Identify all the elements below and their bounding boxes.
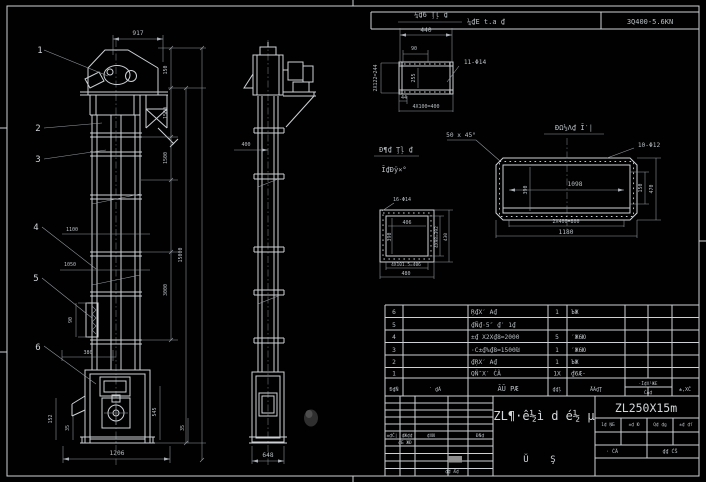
long-detail-dim-1098: 1098 bbox=[568, 181, 583, 188]
front-elevation-view: 1 2 3 4 5 6 917 150 1500 1500 3000 15000… bbox=[33, 30, 206, 465]
dim-152: 152 bbox=[48, 414, 54, 423]
bom-table: Đ₫Ñ ′ ₫Ã ÃŨ PÆ ₫₫ļ ĀÃ₫Ţ ·Ī₫X¹ЖE ĆÃ₫ ±‚XČ… bbox=[385, 305, 699, 476]
title-block: ZL¶·ê½ì d é½ µ ZL250X15m ±₫Č| ₫Ж₫₫ ₫XЮ Đ… bbox=[385, 396, 699, 476]
balloon-1: 1 bbox=[37, 46, 42, 56]
bom-2-qty: 5 bbox=[555, 334, 559, 341]
balloon-6: 6 bbox=[35, 343, 40, 353]
header-model-code: 3Q400-5.6KN bbox=[627, 18, 673, 26]
square-detail-dim-480: 480 bbox=[401, 271, 410, 277]
bom-header-no: Đ₫Ñ bbox=[389, 386, 398, 393]
square-detail-dim-430: 430 bbox=[443, 233, 449, 241]
smudge-inner bbox=[306, 410, 313, 418]
front-dim-arrows bbox=[63, 37, 170, 460]
bom-5-no: 1 bbox=[392, 371, 396, 378]
dim-917: 917 bbox=[132, 30, 143, 37]
bom-header-note: ±‚XČ bbox=[679, 386, 691, 393]
bom-row: 3 ·C±₫%₫8=1500₪ 1 ′Ж6Ю bbox=[392, 347, 586, 354]
long-detail-dim-800: 2X400=800 bbox=[552, 219, 579, 225]
bom-5-qty: 1X bbox=[553, 371, 561, 378]
long-detail-dim-470: 470 bbox=[649, 184, 655, 193]
cad-drawing: ¼₫E t.a ₫ 3Q400-5.6KN ¼₫6 Ţļ ₫ 440 90 11… bbox=[0, 0, 706, 482]
bom-3-name: ·C±₫%₫8=1500₪ bbox=[471, 347, 520, 354]
bom-header-name: ÃŨ PÆ bbox=[497, 384, 519, 393]
bom-row: 6 Ŗ₫X′ A₫ 1 ЪЖ bbox=[392, 309, 579, 317]
bom-4-mat: ЪЖ bbox=[571, 359, 579, 366]
bom-row: 2 ₫ŖX′ A₫ 1 ЪЖ bbox=[392, 359, 579, 367]
drawing-frame bbox=[0, 0, 706, 482]
bom-2-mat: ′Ж6Ю bbox=[571, 334, 586, 341]
dim-150: 150 bbox=[163, 65, 169, 74]
bom-5-name: QÑ″X′ ĆÃ bbox=[471, 369, 501, 378]
long-plate-detail: ĐΩ½Λ₫ Ī′| 10-Φ12 1098 390 150 470 2X400=… bbox=[496, 123, 661, 238]
dim-545: 545 bbox=[152, 407, 158, 416]
tb-mid-glyph-2: Ş bbox=[550, 455, 555, 465]
bom-row: 1 QÑ″X′ ĆÃ 1X ₫6Æ· bbox=[392, 369, 586, 378]
flange-linework bbox=[399, 62, 453, 94]
bom-2-no: 4 bbox=[392, 334, 396, 341]
bom-4-no: 2 bbox=[392, 359, 396, 366]
bom-row: 5 ₫Ñ₫·5″ ₫′ 1₫ bbox=[392, 320, 516, 329]
bom-3-no: 3 bbox=[392, 347, 396, 354]
side-dim-lines bbox=[234, 150, 284, 464]
dim-35a: 35 bbox=[65, 425, 71, 431]
tb-right-c1: ±₫ Ю bbox=[629, 422, 640, 428]
square-detail-dim-392: 4X98=392 bbox=[434, 226, 440, 248]
flange-bolt-holes bbox=[399, 64, 453, 92]
inspection-door-inner bbox=[104, 381, 126, 392]
bom-0-no: 6 bbox=[392, 309, 396, 316]
drawing-title: ZL¶·ê½ì d é½ µ bbox=[493, 409, 594, 423]
flange-holes-label: 11-Φ14 bbox=[464, 59, 487, 66]
side-elevation-view: 400 648 bbox=[234, 40, 316, 465]
dim-1500b: 1500 bbox=[163, 152, 169, 164]
tb-right-c2: Q₫ ₫g bbox=[653, 422, 667, 428]
centering-marks bbox=[0, 0, 706, 482]
bom-3-qty: 1 bbox=[555, 347, 559, 354]
front-dim-ticks bbox=[169, 46, 204, 462]
bom-header-code: ′ ₫Ã bbox=[429, 386, 441, 393]
dim-90: 90 bbox=[68, 317, 74, 323]
bom-3-mat: ′Ж6Ю bbox=[571, 347, 586, 354]
balloon-3: 3 bbox=[35, 155, 40, 165]
feed-inlet-detail bbox=[92, 306, 96, 334]
side-head-drive bbox=[244, 42, 316, 127]
flange-dim-44: 44 bbox=[401, 95, 407, 101]
bom-1-name: ₫Ñ₫·5″ ₫′ 1₫ bbox=[471, 320, 516, 329]
flange-title: ¼₫6 Ţļ ₫ bbox=[414, 11, 449, 20]
square-flange-detail: Đ¶₫ Ţļ ₫ Ĩ₫Đÿ×° 16-Φ14 406 390 4X98=392 … bbox=[374, 146, 453, 279]
bom-5-mat: ₫6Æ· bbox=[571, 371, 586, 378]
tb-scale-label: · ĆÃ bbox=[606, 448, 618, 455]
tb-mid-glyph-1: Ŭ bbox=[523, 453, 528, 465]
flange-dim-90: 90 bbox=[411, 46, 417, 52]
long-detail-dim-150: 150 bbox=[638, 183, 644, 192]
long-detail-title: ĐΩ½Λ₫ Ī′| bbox=[555, 123, 593, 132]
dim-15000: 15000 bbox=[178, 247, 184, 262]
flange-dim-440: 440 bbox=[420, 27, 431, 34]
flange-dim-left: 2X122=244 bbox=[373, 64, 379, 91]
square-detail-holes: 16-Φ14 bbox=[393, 197, 411, 203]
side-dim-648: 648 bbox=[262, 452, 273, 459]
chamfer-text: 50 x 45° bbox=[446, 131, 476, 139]
tb-left-row: ₫Б ЖĐ bbox=[398, 440, 412, 446]
boot-inner bbox=[90, 374, 145, 439]
dim-1206: 1206 bbox=[110, 450, 125, 457]
dim-35b: 35 bbox=[180, 425, 186, 431]
long-detail-dim-390: 390 bbox=[523, 185, 529, 194]
boot-base bbox=[72, 396, 155, 443]
balloon-2: 2 bbox=[35, 124, 40, 134]
long-detail-holes: 10-Φ12 bbox=[638, 142, 661, 149]
tb-left-h1: ₫Ж₫₫ bbox=[402, 433, 413, 439]
balloon-4: 4 bbox=[33, 223, 38, 233]
approval-stamp-cell bbox=[448, 456, 462, 463]
chamfer-leader bbox=[447, 140, 500, 161]
chamfer-note: 50 x 45° bbox=[446, 131, 500, 161]
cad-drawing-canvas: ¼₫E t.a ₫ 3Q400-5.6KN ¼₫6 Ţļ ₫ 440 90 11… bbox=[0, 0, 706, 482]
discharge-chute bbox=[146, 95, 178, 147]
tb-sheet-label: ₫₫ ĆŠ bbox=[662, 448, 677, 455]
long-detail-linework bbox=[496, 158, 637, 220]
tb-right-c0: 1₫ ŅБ bbox=[601, 422, 615, 428]
bom-row: 4 ±₫ X2X₫8=2000 5 ′Ж6Ю bbox=[392, 334, 586, 341]
bom-header-weight-sub: ĆÃ₫ bbox=[644, 389, 652, 396]
bom-0-qty: 1 bbox=[555, 309, 559, 316]
bom-2-name: ±₫ X2X₫8=2000 bbox=[471, 334, 520, 341]
bom-4-name: ₫ŖX′ A₫ bbox=[471, 359, 497, 367]
dim-1050: 1050 bbox=[64, 262, 76, 268]
square-detail-title-2: Ĩ₫Đÿ×° bbox=[381, 165, 406, 174]
shaft-hub bbox=[107, 69, 113, 75]
dim-380: 380 bbox=[83, 350, 92, 356]
long-detail-dim-1180: 1180 bbox=[559, 229, 574, 236]
smudge-artifact bbox=[304, 410, 318, 427]
bom-4-qty: 1 bbox=[555, 359, 559, 366]
dim-1100: 1100 bbox=[66, 227, 78, 233]
header-model-note: ¼₫E t.a ₫ bbox=[467, 18, 506, 26]
bom-header-weight: ·Ī₫X¹ЖE bbox=[639, 380, 658, 387]
square-detail-title-1: Đ¶₫ Ţļ ₫ bbox=[379, 146, 414, 155]
balloon-5: 5 bbox=[33, 274, 38, 284]
bom-header-material: ĀÃ₫Ţ bbox=[590, 386, 602, 393]
bom-0-name: Ŗ₫X′ A₫ bbox=[471, 309, 497, 317]
bom-header-qty: ₫₫ļ bbox=[552, 387, 561, 393]
dim-1500a: 1500 bbox=[163, 107, 169, 119]
bom-1-no: 5 bbox=[392, 322, 396, 329]
tb-right-c3: ±₫ ₫ſ bbox=[679, 422, 693, 428]
square-detail-dim-390: 390 bbox=[387, 232, 393, 241]
model-code: ZL250X15m bbox=[615, 401, 677, 415]
dim-3000: 3000 bbox=[163, 284, 169, 296]
tb-left-h2: ₫XЮ bbox=[427, 433, 435, 439]
square-detail-dim-bottom1: 4X101.5=406 bbox=[391, 262, 421, 268]
drive-wheel bbox=[126, 71, 137, 82]
flange-dim-bottom: 4X100=400 bbox=[412, 104, 439, 110]
tb-left-bottom: ₫₫ Æ₫ bbox=[445, 469, 459, 475]
side-dim-400: 400 bbox=[241, 142, 250, 148]
flange-dim-inner: 255 bbox=[411, 73, 417, 82]
tb-left-h3: ĐÑ₫ bbox=[476, 432, 484, 439]
boot-wheel-cross bbox=[104, 401, 128, 425]
square-detail-dim-406: 406 bbox=[402, 220, 411, 226]
flange-detail: ¼₫6 Ţļ ₫ 440 90 11-Φ14 2X122=244 255 44 … bbox=[373, 11, 486, 112]
tb-left-h0: ±₫Č| bbox=[387, 432, 398, 439]
bom-0-mat: ЪЖ bbox=[571, 309, 579, 316]
